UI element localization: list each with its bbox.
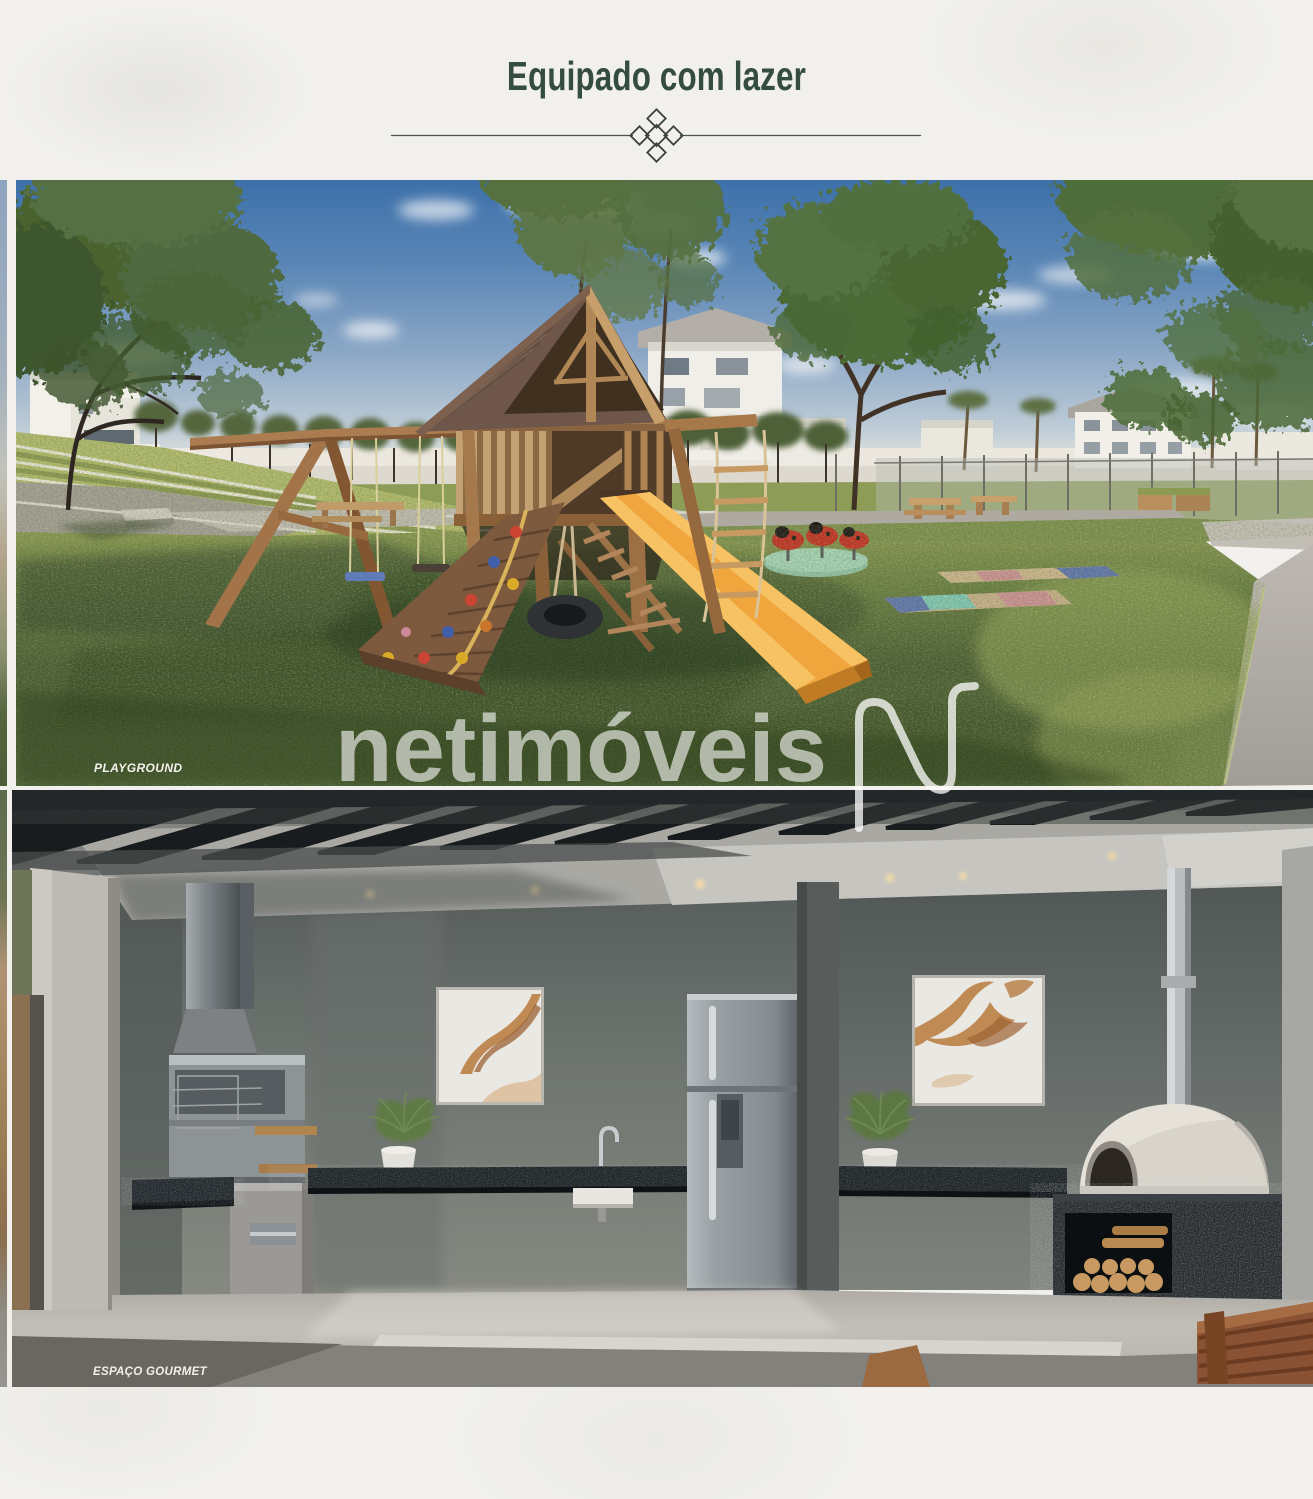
- svg-text:ESPAÇO GOURMET: ESPAÇO GOURMET: [93, 1366, 208, 1378]
- svg-text:netimóveis: netimóveis: [335, 696, 827, 802]
